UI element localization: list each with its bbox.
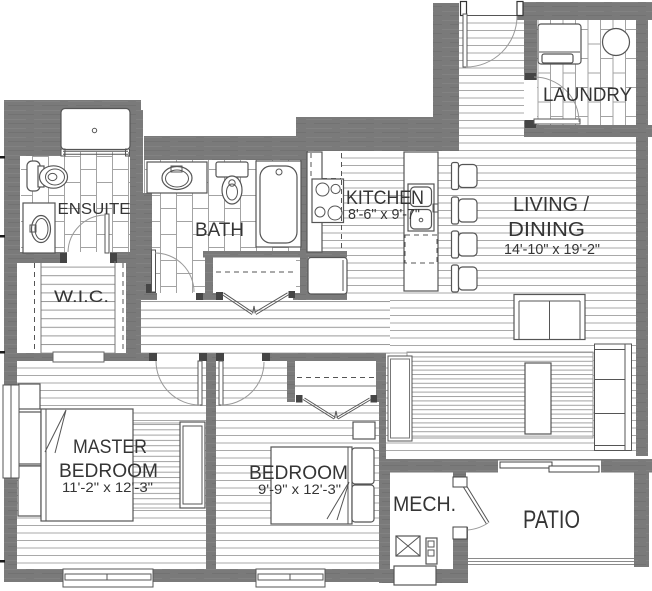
svg-text:LAUNDRY: LAUNDRY bbox=[543, 85, 632, 106]
svg-text:LIVING /: LIVING / bbox=[513, 193, 589, 216]
svg-text:PATIO: PATIO bbox=[523, 506, 580, 534]
svg-text:ENSUITE: ENSUITE bbox=[58, 201, 131, 218]
svg-text:W.I.C.: W.I.C. bbox=[54, 287, 109, 306]
svg-text:MASTER: MASTER bbox=[73, 436, 147, 458]
svg-text:8'-6" x 9'-7": 8'-6" x 9'-7" bbox=[348, 206, 420, 223]
svg-text:14'-10" x 19'-2": 14'-10" x 19'-2" bbox=[504, 242, 600, 258]
svg-text:DINING: DINING bbox=[508, 218, 585, 241]
svg-text:9'-9" x 12'-3": 9'-9" x 12'-3" bbox=[258, 481, 341, 497]
svg-text:11'-2" x 12'-3": 11'-2" x 12'-3" bbox=[62, 479, 153, 495]
svg-text:BATH: BATH bbox=[195, 220, 244, 241]
svg-text:MECH.: MECH. bbox=[393, 492, 456, 516]
